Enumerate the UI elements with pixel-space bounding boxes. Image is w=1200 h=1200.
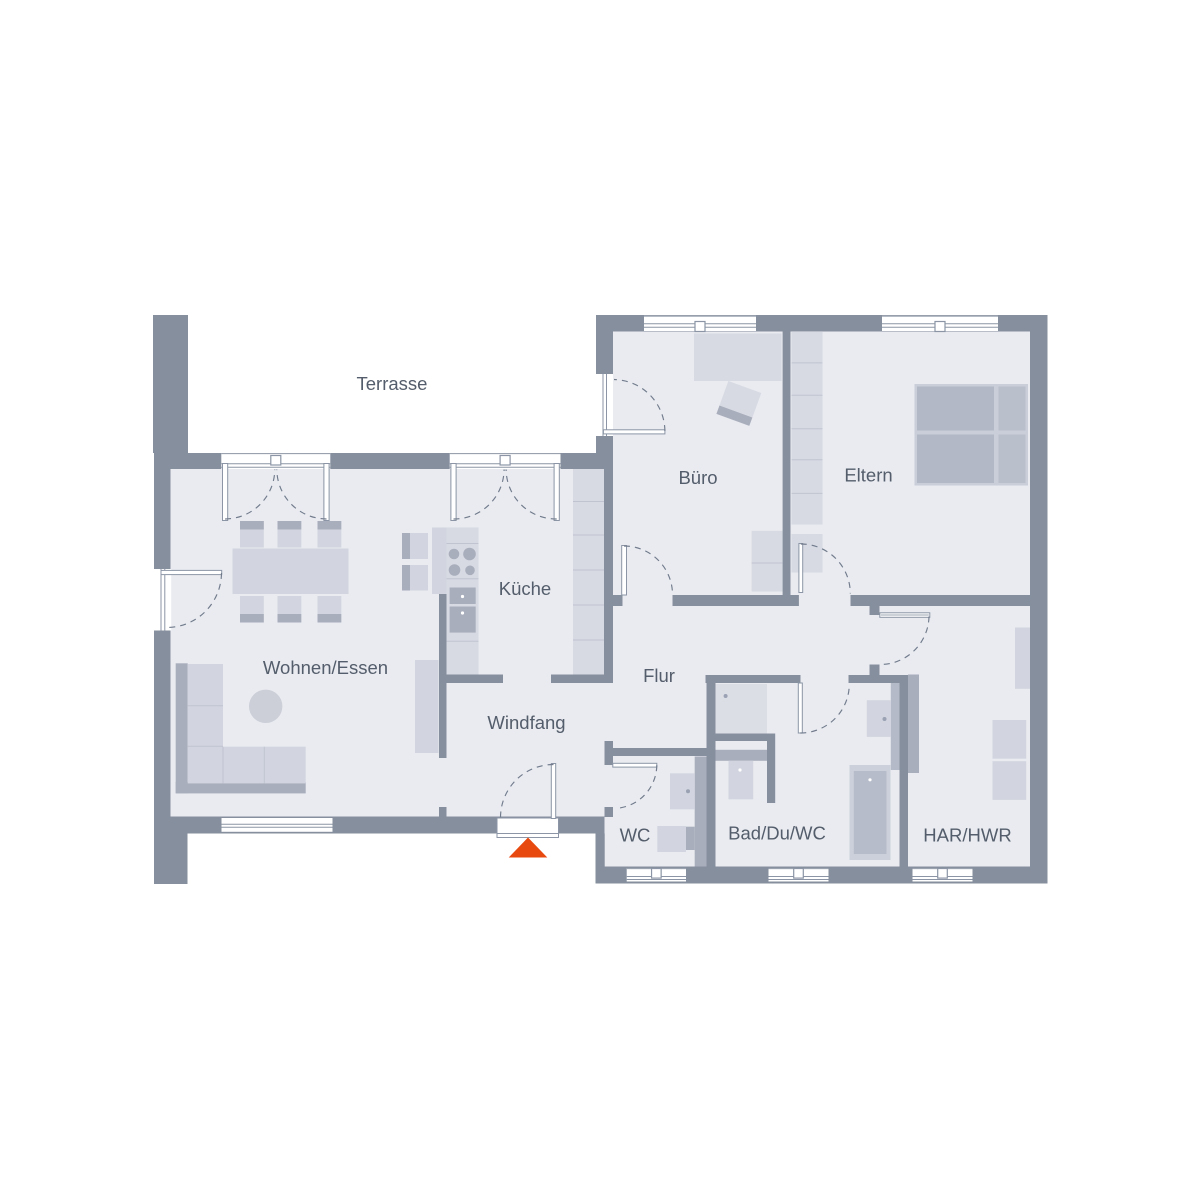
svg-text:Wohnen/Essen: Wohnen/Essen	[263, 657, 388, 678]
svg-text:Bad/Du/WC: Bad/Du/WC	[728, 823, 826, 844]
svg-text:Flur: Flur	[643, 665, 675, 686]
svg-text:HAR/HWR: HAR/HWR	[923, 825, 1011, 846]
svg-text:Büro: Büro	[678, 467, 717, 488]
svg-text:Terrasse: Terrasse	[357, 373, 428, 394]
svg-text:Eltern: Eltern	[844, 465, 892, 486]
svg-text:Windfang: Windfang	[487, 712, 565, 733]
svg-text:WC: WC	[620, 825, 651, 846]
svg-text:Küche: Küche	[499, 578, 551, 599]
